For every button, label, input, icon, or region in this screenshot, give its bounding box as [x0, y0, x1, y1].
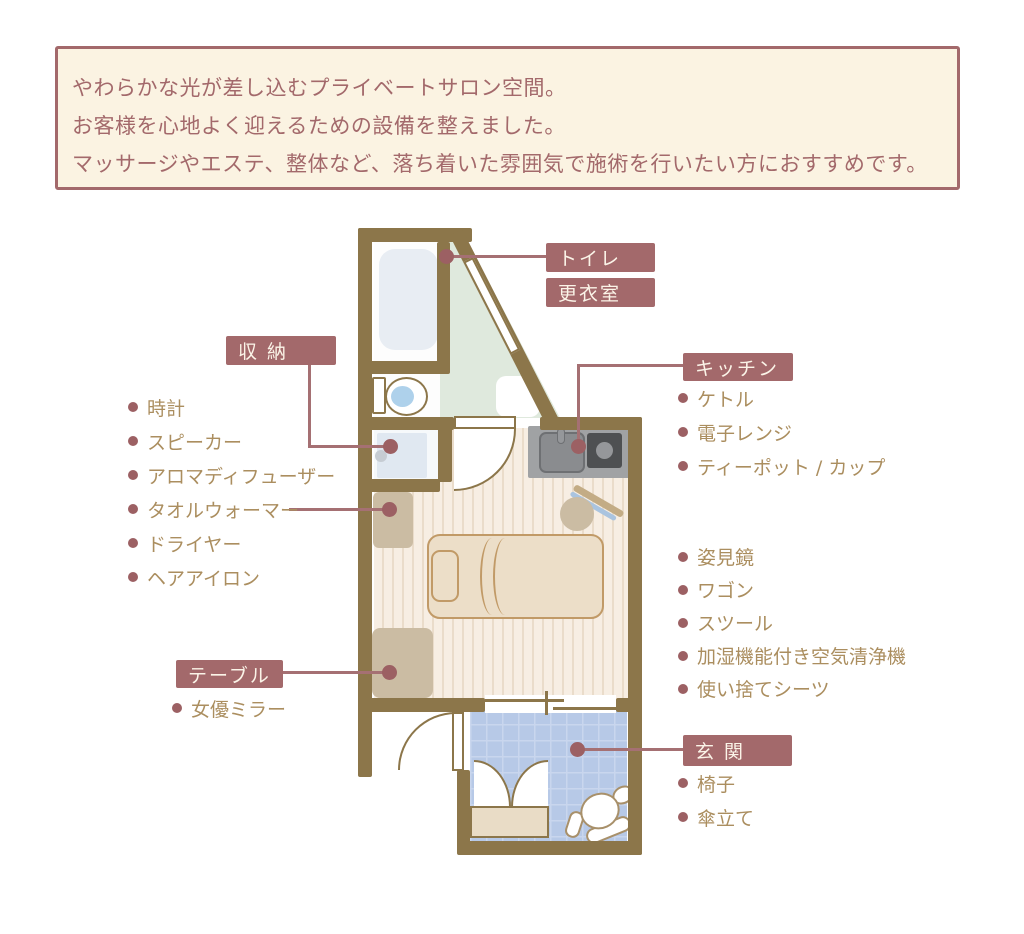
bullet-icon — [678, 427, 688, 437]
entrance-connector — [578, 748, 683, 751]
kitchen-connector-h — [578, 364, 683, 367]
towel-warmer-dot — [382, 502, 397, 517]
entrance-dot — [570, 742, 585, 757]
list-item: ティーポット / カップ — [678, 449, 885, 483]
bullet-icon — [128, 572, 138, 582]
list-item-label: 加湿機能付き空気清浄機 — [697, 642, 906, 669]
wall-left — [358, 228, 372, 777]
toilet-seat — [391, 386, 414, 407]
label-entrance: 玄 関 — [683, 735, 792, 766]
wall-closet-right — [438, 417, 452, 482]
table-item-list: 女優ミラー — [172, 692, 286, 724]
bullet-icon — [678, 812, 688, 822]
list-item: タオルウォーマー — [128, 492, 335, 526]
toilet-dot — [439, 249, 454, 264]
list-item: 椅子 — [678, 766, 754, 800]
bullet-icon — [128, 436, 138, 446]
entrance-item-list: 椅子 傘立て — [678, 766, 754, 834]
description-line-2: お客様を心地よく迎えるための設備を整えました。 — [72, 107, 942, 145]
list-item-label: 時計 — [147, 394, 185, 421]
stool — [560, 497, 594, 531]
wall-bottom-right — [616, 698, 630, 712]
kitchen-faucet — [557, 428, 565, 444]
list-item-label: 傘立て — [697, 804, 754, 831]
wall-mid-right — [540, 417, 642, 430]
bullet-icon — [678, 618, 688, 628]
bullet-icon — [678, 552, 688, 562]
wall-entrance-bottom — [457, 841, 642, 855]
changing-door-leaf — [454, 416, 516, 429]
label-changing-room: 更衣室 — [546, 278, 655, 307]
bullet-icon — [678, 461, 688, 471]
kitchen-connector-v — [577, 364, 580, 447]
label-table: テーブル — [176, 660, 283, 688]
entry-door-arc — [398, 712, 456, 770]
bullet-icon — [128, 538, 138, 548]
sliding-door-tick — [545, 691, 548, 715]
bullet-icon — [678, 651, 688, 661]
description-line-3: マッサージやエステ、整体など、落ち着いた雰囲気で施術を行いたい方におすすめです。 — [72, 145, 942, 183]
list-item: ワゴン — [678, 573, 906, 606]
list-item: 加湿機能付き空気清浄機 — [678, 639, 906, 672]
bullet-icon — [128, 470, 138, 480]
bullet-icon — [128, 504, 138, 514]
toilet-connector — [447, 255, 546, 258]
list-item: 傘立て — [678, 800, 754, 834]
wall-bath-divider — [358, 361, 450, 374]
bullet-icon — [678, 684, 688, 694]
list-item: 使い捨てシーツ — [678, 672, 906, 705]
storage-dot — [383, 439, 398, 454]
list-item-label: ヘアアイロン — [147, 564, 260, 591]
towel-warmer-unit — [373, 492, 413, 548]
wall-bottom-left — [358, 698, 485, 712]
bullet-icon — [678, 585, 688, 595]
list-item-label: ケトル — [697, 385, 754, 412]
description-box: やわらかな光が差し込むプライベートサロン空間。 お客様を心地よく迎えるための設備… — [55, 46, 960, 190]
table-connector — [283, 671, 390, 674]
bullet-icon — [678, 778, 688, 788]
sliding-door-rail-1 — [485, 699, 564, 702]
label-kitchen: キッチン — [683, 353, 793, 381]
sliding-door-gap — [485, 695, 616, 713]
entry-door-leaf — [452, 712, 464, 771]
floor-plan-page: やわらかな光が差し込むプライベートサロン空間。 お客様を心地よく迎えるための設備… — [0, 0, 1024, 934]
kitchen-burner — [596, 442, 613, 459]
list-item-label: ティーポット / カップ — [697, 453, 885, 480]
table-unit — [372, 628, 433, 698]
list-item: スツール — [678, 606, 906, 639]
list-item: スピーカー — [128, 424, 335, 458]
table-dot — [382, 665, 397, 680]
label-toilet: トイレ — [546, 243, 655, 272]
list-item-label: ドライヤー — [147, 530, 241, 557]
list-item: 姿見鏡 — [678, 540, 906, 573]
label-storage: 収 納 — [226, 336, 336, 365]
list-item-label: 電子レンジ — [697, 419, 792, 446]
storage-item-list: 時計 スピーカー アロマディフューザー タオルウォーマー ドライヤー ヘアアイロ… — [128, 390, 335, 594]
bathtub — [379, 249, 438, 350]
toilet-tank — [372, 377, 386, 414]
list-item-label: スツール — [697, 609, 773, 636]
list-item: ケトル — [678, 381, 885, 415]
bed-pillow — [431, 550, 459, 602]
list-item-label: 椅子 — [697, 770, 735, 797]
list-item-label: スピーカー — [147, 428, 242, 455]
shoe-cabinet — [470, 806, 549, 838]
wall-right — [628, 417, 642, 855]
bullet-icon — [172, 703, 182, 713]
list-item: 時計 — [128, 390, 335, 424]
list-item: アロマディフューザー — [128, 458, 335, 492]
bullet-icon — [128, 402, 138, 412]
salon-item-list: 姿見鏡 ワゴン スツール 加湿機能付き空気清浄機 使い捨てシーツ — [678, 540, 906, 705]
list-item-label: ワゴン — [697, 576, 754, 603]
list-item-label: 使い捨てシーツ — [697, 675, 830, 702]
description-line-1: やわらかな光が差し込むプライベートサロン空間。 — [72, 69, 942, 107]
list-item: 電子レンジ — [678, 415, 885, 449]
kitchen-dot — [571, 439, 586, 454]
list-item-label: 女優ミラー — [191, 695, 286, 722]
list-item-label: タオルウォーマー — [147, 496, 299, 523]
kitchen-item-list: ケトル 電子レンジ ティーポット / カップ — [678, 381, 885, 483]
list-item: 女優ミラー — [172, 692, 286, 724]
list-item: ドライヤー — [128, 526, 335, 560]
list-item-label: 姿見鏡 — [697, 543, 754, 570]
list-item: ヘアアイロン — [128, 560, 335, 594]
bullet-icon — [678, 393, 688, 403]
sliding-door-rail-2 — [553, 707, 616, 710]
wall-closet-bottom — [358, 479, 440, 492]
list-item-label: アロマディフューザー — [147, 462, 335, 489]
